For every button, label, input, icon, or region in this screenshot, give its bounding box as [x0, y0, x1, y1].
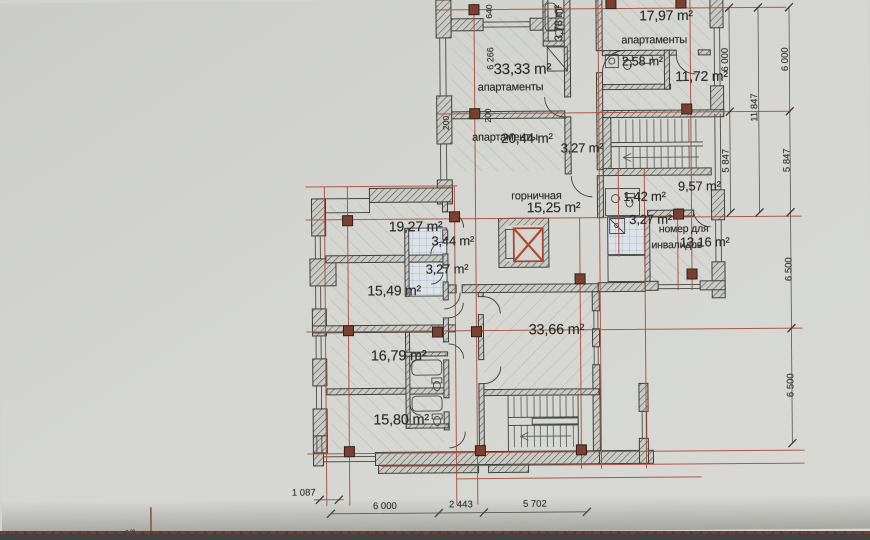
- dimension-label: 5 702: [523, 499, 547, 510]
- dimension-label: 5 847: [782, 148, 793, 172]
- dimension-label: 640: [484, 4, 494, 18]
- room-area-label: 16,79 m²: [371, 348, 427, 364]
- room-area-label: 15,25 m²: [527, 199, 581, 215]
- room-area-label: 33,33 m²: [494, 61, 552, 78]
- dimension-label: 6 000: [373, 501, 397, 512]
- floor-plan-photo: 17,97 m² апартаменты 2,58 m² 11,72 m² 3,…: [0, 0, 870, 540]
- room-area-label: 19,27 m²: [389, 218, 443, 234]
- room-area-label: 3,27 m²: [426, 261, 469, 276]
- text-layer: 17,97 m² апартаменты 2,58 m² 11,72 m² 3,…: [0, 0, 870, 540]
- plan-sheet: 17,97 m² апартаменты 2,58 m² 11,72 m² 3,…: [0, 0, 870, 540]
- photo-edge-strip: [0, 531, 870, 540]
- room-area-label: 17,97 m²: [639, 7, 693, 23]
- room-area-label: 33,66 m²: [529, 322, 585, 338]
- room-area-label: 3,44 m²: [431, 233, 474, 248]
- dimension-label: 6 500: [783, 257, 794, 281]
- dimension-label: 1 087: [292, 487, 316, 498]
- dimension-label: 200: [483, 108, 493, 122]
- room-name-label: апартаменты: [621, 34, 687, 47]
- dimension-label: 6 500: [785, 373, 796, 397]
- dimension-label: 6 000: [720, 48, 731, 72]
- room-area-label: 15,80 m²: [373, 412, 429, 428]
- room-area-label: 9,57 m²: [678, 178, 721, 193]
- room-area-label: 3,78 m²: [553, 5, 565, 41]
- dimension-label: 5 847: [721, 149, 732, 173]
- room-area-label: 13,16 m²: [680, 234, 730, 249]
- dimension-label: 2 443: [449, 499, 473, 510]
- dimension-label: 6 000: [780, 47, 791, 71]
- room-area-label: 20,44 m²: [501, 131, 553, 146]
- room-area-label: 1,42 m²: [623, 189, 666, 204]
- dimension-label: 11 847: [749, 93, 760, 121]
- room-area-label: 15,49 m²: [367, 282, 421, 298]
- dimension-label: 200: [441, 116, 451, 130]
- dimension-label: 6 266: [485, 47, 495, 70]
- room-name-label: апартаменты: [478, 81, 544, 94]
- room-area-label: 2,58 m²: [622, 54, 663, 68]
- room-area-label: 3,27 m²: [561, 140, 604, 155]
- room-name-label: номер для: [659, 223, 709, 235]
